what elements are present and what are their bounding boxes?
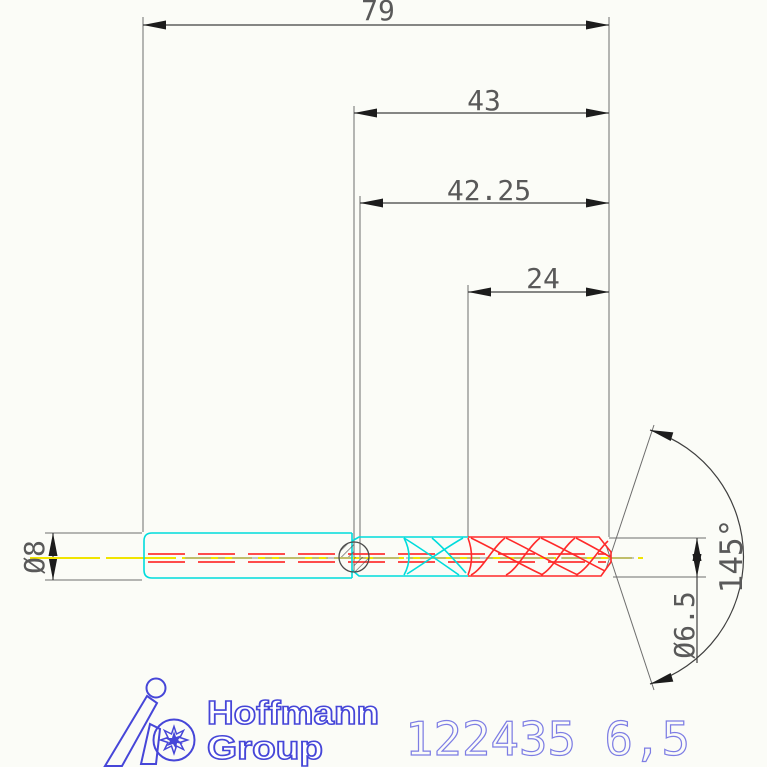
red-section-start-curve [468, 538, 472, 575]
arrow-79-right [586, 21, 609, 30]
drill-cutting-section [468, 537, 611, 576]
red-helix-up-2 [506, 538, 540, 575]
hoffmann-logo-icon [105, 679, 195, 767]
label-point-angle: 145° [714, 519, 750, 594]
neck-top-edge [352, 537, 468, 541]
arrow-24-left [468, 288, 491, 297]
arrow-dia65-down [693, 554, 702, 577]
red-helix-down-2 [506, 538, 578, 575]
arrow-24-right [586, 288, 609, 297]
arrow-42-25-left [360, 199, 383, 208]
drill-dimension-drawing: 79 43 42.25 24 Ø8 Ø6.5 145° Hoffmann Gro… [0, 0, 767, 767]
extension-lines [45, 17, 706, 690]
shank-body [144, 533, 352, 578]
cyan-flute-helix-2 [407, 538, 463, 574]
brand-wordmark: Hoffmann Group [207, 694, 379, 766]
logo-star-core [165, 731, 183, 749]
point-angle-line-upper [606, 425, 654, 569]
dimension-labels: 79 43 42.25 24 Ø8 Ø6.5 145° [18, 0, 750, 659]
arrow-79-left [143, 21, 166, 30]
label-secondary-length: 42.25 [447, 174, 531, 207]
label-step-length: 24 [526, 262, 560, 295]
dimension-arrowheads [49, 21, 702, 689]
arrow-43-left [354, 109, 377, 118]
brand-line2: Group [207, 729, 323, 766]
brand-line1: Hoffmann [207, 694, 379, 731]
hatched-section-circle [339, 542, 369, 572]
dimension-lines [53, 25, 744, 684]
label-cutting-diameter: Ø6.5 [668, 591, 701, 658]
drill-shank-outline [144, 533, 468, 578]
label-overall-length: 79 [361, 0, 395, 27]
technical-drawing-canvas: 79 43 42.25 24 Ø8 Ø6.5 145° Hoffmann Gro… [0, 0, 767, 767]
arrow-43-right [586, 109, 609, 118]
red-helix-up-1 [471, 538, 505, 575]
red-helix-up-3 [541, 538, 575, 575]
point-angle-line-lower [606, 545, 654, 690]
arrow-42-25-right [586, 199, 609, 208]
logo-head [147, 679, 166, 698]
part-number: 122435 6,5 [405, 712, 690, 766]
flute-start-curve [404, 538, 409, 575]
label-shank-diameter: Ø8 [18, 540, 51, 574]
arrow-arc-top [649, 426, 674, 441]
red-helix-down-1 [471, 538, 543, 575]
label-flute-length: 43 [467, 84, 501, 117]
